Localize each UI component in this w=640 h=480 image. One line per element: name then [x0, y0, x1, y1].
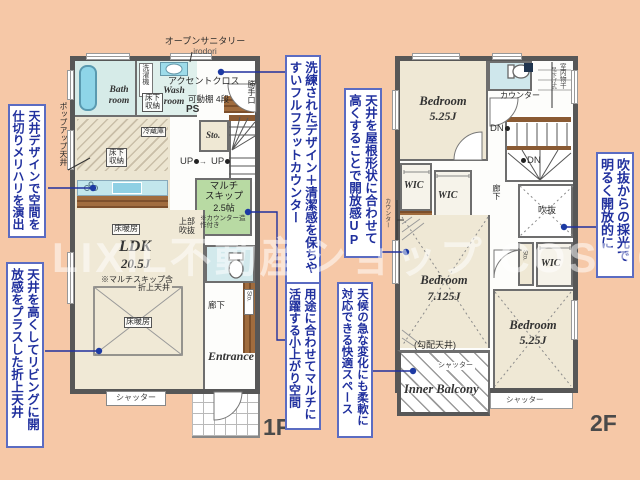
bedroom1-size-label: 5.25J: [414, 110, 472, 123]
window: [392, 240, 399, 284]
callout-void-light: 吹抜からの採光で明るく開放的に: [596, 152, 634, 278]
window: [492, 53, 522, 60]
window: [571, 300, 578, 340]
shutter-label-2f-a: シャッター: [436, 362, 475, 370]
window: [86, 53, 130, 60]
ps-label: PS: [186, 104, 199, 115]
room-toilet-2f: [488, 61, 532, 91]
callout-ceiling-design: 天井デザインで空間を仕切りメリハリを演出: [8, 104, 46, 238]
window: [412, 53, 460, 60]
indoor-drying-label: 室内物干: [558, 63, 565, 89]
multi-skip-note-label: ※カウンター造作付き: [200, 215, 248, 230]
ldk-size-label: 20.5J: [121, 257, 150, 272]
porch: [192, 394, 260, 438]
window: [67, 130, 74, 170]
shutter-label-2f-b: シャッター: [506, 396, 544, 404]
dn-label-a: DN: [490, 124, 511, 135]
ldk-label: LDK: [119, 238, 151, 256]
stairs-2f: [505, 115, 573, 182]
multi-skip-size-label: 2.5帖: [206, 203, 242, 213]
void-label: 吹抜: [538, 205, 556, 215]
up-dot: [225, 159, 230, 164]
upper-void-label: 上部吹抜: [179, 218, 197, 236]
callout-flat-counter: 洗練されたデザイン＋清潔感を保ちやすいフルフラットカウンター: [285, 55, 321, 287]
sloped-ceiling-label: (勾配天井): [414, 340, 456, 350]
floor2-label: 2F: [590, 410, 617, 437]
bedroom3-label: Bedroom: [503, 318, 563, 332]
wic-label-a: WIC: [404, 180, 423, 191]
bedroom2-size-label: 7.125J: [412, 290, 476, 303]
dn-dot: [505, 126, 510, 131]
up-label-a: UP: [180, 157, 200, 168]
dn-dot: [521, 158, 526, 163]
indoor-drying-sub-label: 吊下げ式: [550, 67, 556, 89]
storage-label-1f: Sto.: [206, 130, 220, 140]
open-sanitary-label: オープンサニタリー: [145, 36, 265, 46]
wic-label-b: WIC: [438, 190, 457, 201]
floor-heating-label-a: 床暖房: [112, 224, 140, 235]
callout-weather-space: 天候の急な変化にも柔軟に対応できる快適スペース: [337, 282, 373, 438]
refrigerator-label: 冷蔵庫: [141, 127, 166, 137]
wic-label-c: WIC: [541, 258, 560, 269]
bathroom-label: Bath room: [103, 85, 135, 106]
window: [392, 90, 399, 130]
storage-label-2f: Sto.: [521, 250, 528, 261]
dn-label-b: DN: [520, 156, 541, 167]
bathtub: [79, 65, 97, 111]
window: [571, 70, 578, 104]
kitchen-step: [77, 196, 168, 208]
room-toilet-1f: [205, 245, 255, 283]
up-arrow: →: [199, 158, 207, 167]
floorplan-image: オープンサニタリー irodori アクセントクロス 洗濯機 Bath room…: [0, 0, 640, 480]
window: [67, 252, 74, 304]
folded-ceiling-label: 折上天井: [136, 284, 172, 293]
entrance-storage-label: Sto.: [245, 291, 252, 302]
ps-shaft: [207, 104, 221, 114]
underfloor-storage-label-b: 床下収納: [106, 148, 127, 167]
inner-balcony-label: Inner Balcony: [404, 382, 479, 396]
sanitary-counter-sink: [160, 62, 188, 76]
counter-side-label: カウンター: [383, 198, 390, 228]
stairs-1f: [229, 115, 255, 182]
underfloor-storage-label-a: 床下収納: [142, 93, 163, 112]
room-ldk: [75, 210, 205, 389]
hallway-label-1f: 廊下: [208, 301, 225, 311]
callout-multi-space: 用途に合わせてマルチに活躍する小上がり空間: [285, 282, 321, 430]
hallway-label-2f: 廊下: [491, 184, 500, 200]
kitchen-sink: [112, 182, 142, 194]
accent-cloth-label: アクセントクロス: [168, 76, 240, 86]
room-storage-2f: [518, 242, 534, 286]
up-label-b: UP: [211, 157, 231, 168]
bedroom2-label: Bedroom: [412, 273, 476, 287]
multi-skip-label-2: スキップ: [201, 192, 247, 203]
window: [67, 70, 74, 100]
washer-label: 洗濯機: [141, 64, 149, 85]
callout-roof-ceiling: 天井を屋根形状に合わせて高くすることで開放感UP: [344, 88, 382, 258]
counter-top-label: カウンター: [500, 92, 540, 101]
callout-folded-ceiling: 天井を高くしてリビングに開放感をプラスした折上天井: [6, 262, 44, 448]
bedroom1-label: Bedroom: [414, 94, 472, 108]
bedroom3-size-label: 5.25J: [503, 334, 563, 347]
kitchen-door-label: 勝手口: [246, 80, 255, 104]
popup-ceiling-label: ポップアップ天井: [58, 102, 67, 178]
floor-heating-label-b: 床暖房: [124, 317, 152, 328]
open-sanitary-sub-label: irodori: [145, 47, 265, 57]
entrance-label: Entrance: [208, 350, 254, 363]
shutter-label-1f: シャッター: [106, 394, 166, 403]
